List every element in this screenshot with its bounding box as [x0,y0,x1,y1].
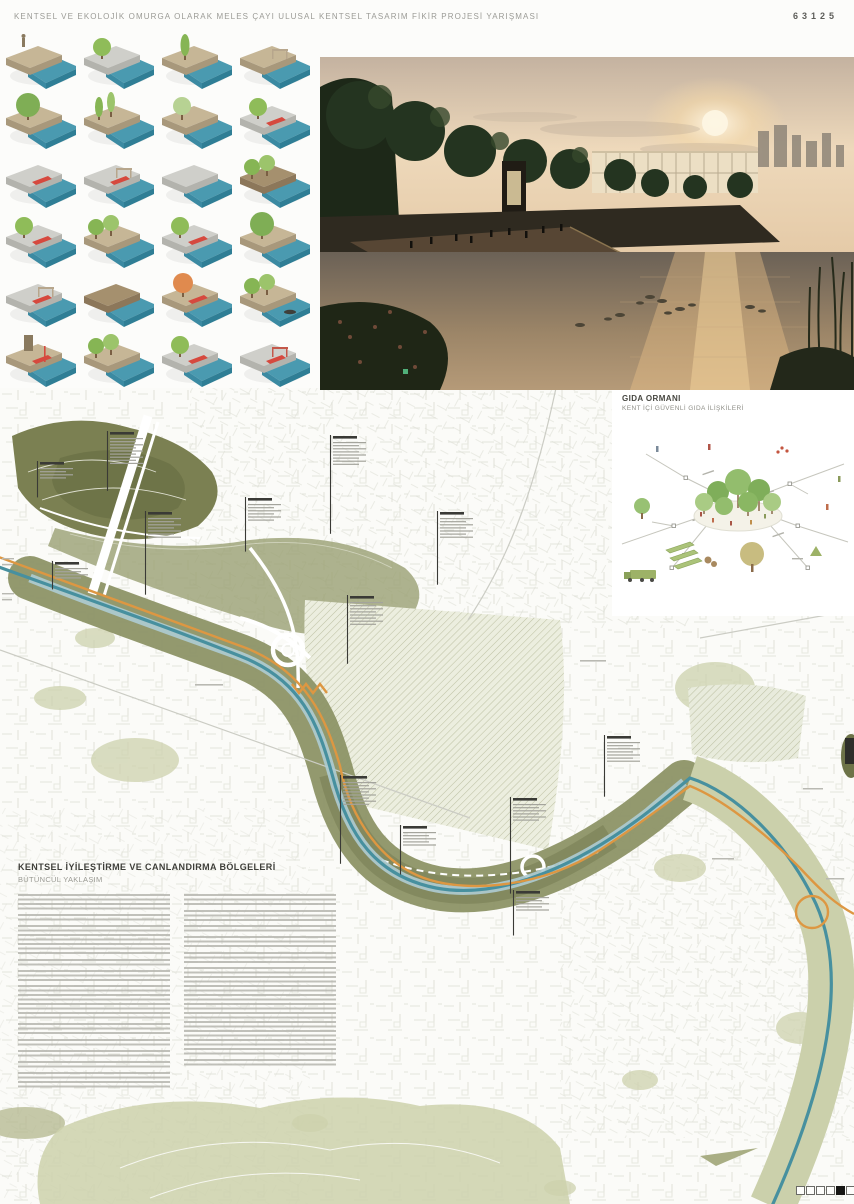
intervention-tile [80,330,154,388]
intervention-tile [236,92,310,150]
paragraph-placeholder [184,967,336,1055]
text-columns [18,894,340,1092]
intervention-tile [158,211,232,269]
text-column [18,894,170,1092]
text-block-title: KENTSEL İYİLEŞTİRME VE CANLANDIRMA BÖLGE… [18,862,340,872]
sheet-indicator-cell [826,1186,835,1195]
food-forest-title: GIDA ORMANI [622,394,681,403]
intervention-tile [2,32,76,90]
intervention-tile [2,151,76,209]
food-forest-diagram [612,418,854,608]
sheet-indicator-cell [836,1186,845,1195]
intervention-tile [236,270,310,328]
intervention-tile [2,270,76,328]
river-sunset-render [320,57,854,390]
south-hill [38,1097,571,1204]
paragraph-placeholder [18,914,170,921]
intervention-tile [80,151,154,209]
intervention-tile [158,270,232,328]
paragraph-placeholder [18,894,170,910]
sheet-indicator [796,1186,854,1195]
intervention-tile [80,211,154,269]
intervention-tile [2,92,76,150]
paragraph-placeholder [184,936,336,948]
competition-board: KENTSEL VE EKOLOJİK OMURGA OLARAK MELES … [0,0,854,1204]
intervention-tile [80,270,154,328]
text-block-subtitle: BÜTÜNCÜL YAKLAŞIM [18,875,340,884]
hatched-zone-east [688,684,806,762]
sheet-number: 63125 [793,11,838,21]
intervention-tile [158,32,232,90]
intervention-tile [80,92,154,150]
intervention-tile-grid [2,32,316,389]
crop-rows-vignette [666,542,702,569]
sheet-indicator-cell [846,1186,854,1195]
intervention-tile [158,151,232,209]
sheet-indicator-cell [806,1186,815,1195]
paragraph-placeholder [184,894,336,906]
paragraph-placeholder [18,1072,170,1088]
intervention-tile [158,330,232,388]
small-tree-vignette [634,498,650,519]
paragraph-placeholder [18,925,170,955]
paragraph-placeholder [18,959,170,966]
intervention-tile [158,92,232,150]
paragraph-placeholder [184,910,336,922]
paragraph-placeholder [18,1023,170,1035]
intervention-tile [236,211,310,269]
food-forest-panel: GIDA ORMANI KENT İÇİ GÜVENLİ GIDA İLİŞKİ… [612,388,854,616]
intervention-tile [236,330,310,388]
paragraph-placeholder [18,1050,170,1057]
paragraph-placeholder [18,1061,170,1068]
truck-vignette [624,570,656,582]
sunset-render-illustration [320,57,854,390]
board-title: KENTSEL VE EKOLOJİK OMURGA OLARAK MELES … [14,12,539,21]
sheet-indicator-cell [796,1186,805,1195]
sheet-indicator-cell [816,1186,825,1195]
paragraph-placeholder [18,1039,170,1046]
intervention-tile [236,151,310,209]
paragraph-placeholder [184,952,336,964]
tan-tree-vignette [740,542,764,572]
description-text-block: KENTSEL İYİLEŞTİRME VE CANLANDIRMA BÖLGE… [18,862,340,1092]
intervention-tile [80,32,154,90]
paragraph-placeholder [184,1059,336,1066]
paragraph-placeholder [18,985,170,1019]
intervention-tile [2,330,76,388]
board-header: KENTSEL VE EKOLOJİK OMURGA OLARAK MELES … [0,0,854,30]
intervention-tile [236,32,310,90]
intervention-tile [2,211,76,269]
paragraph-placeholder [184,925,336,932]
food-forest-subtitle: KENT İÇİ GÜVENLİ GIDA İLİŞKİLERİ [622,405,744,412]
paragraph-placeholder [18,970,170,982]
text-column [184,894,336,1092]
